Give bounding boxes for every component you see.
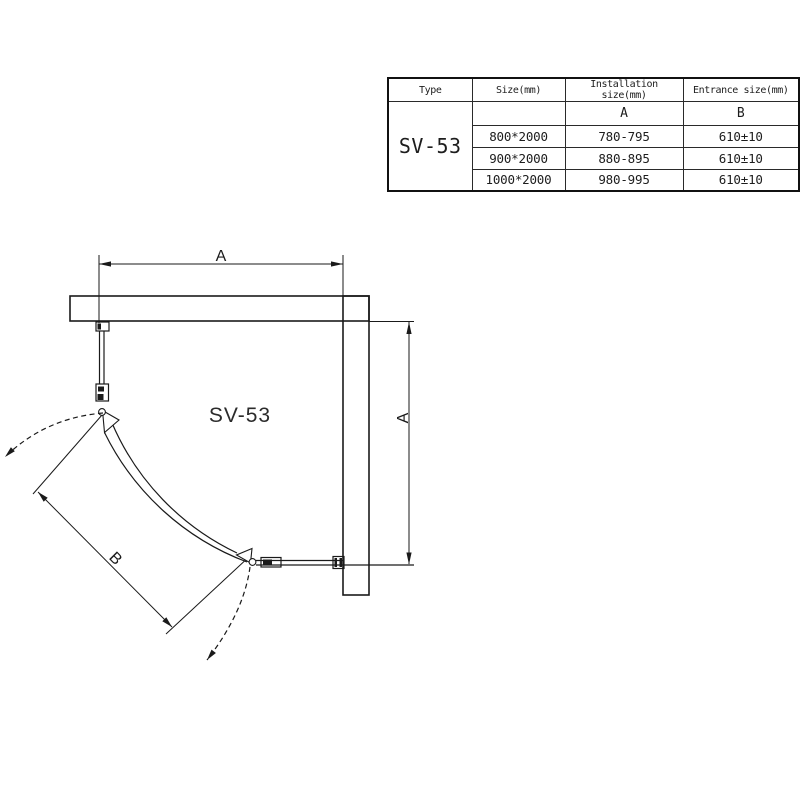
extension-line (33, 415, 102, 494)
cell-installation-1: 880-895 (565, 148, 683, 170)
dimension-line (38, 492, 172, 627)
dim-label-b: B (105, 549, 125, 569)
door-pivots (99, 409, 256, 566)
top-side-panel (96, 322, 109, 401)
cell-installation-0: 780-795 (565, 126, 683, 148)
model-label: SV-53 (209, 404, 271, 427)
side-wall (343, 296, 369, 595)
dimension-a-right: A (369, 322, 414, 565)
hinge-pin (98, 387, 104, 392)
curved-glass (105, 423, 248, 562)
hinge-pin (98, 394, 104, 400)
swing-arrowhead (207, 650, 216, 660)
cell-entrance-2: 610±10 (683, 170, 799, 191)
cell-type-value: SV-53 (388, 102, 472, 191)
cell-size-subheader (472, 102, 565, 126)
cell-entrance-0: 610±10 (683, 126, 799, 148)
extension-line (166, 555, 251, 634)
pivot-point-bottom (249, 559, 256, 566)
table-header-row: Type Size(mm) Installation size(mm) Entr… (388, 78, 799, 102)
cell-installation-2: 980-995 (565, 170, 683, 191)
arrowhead (406, 553, 411, 565)
dim-label-a-top: A (216, 248, 227, 265)
cell-size-1: 900*2000 (472, 148, 565, 170)
spec-table: Type Size(mm) Installation size(mm) Entr… (387, 77, 800, 192)
hinge-pin (263, 560, 272, 566)
arrowhead (331, 261, 343, 266)
header-type: Type (388, 78, 472, 102)
glass-arc-outer (105, 433, 248, 563)
door-swing-arcs (5, 413, 250, 660)
header-size: Size(mm) (472, 78, 565, 102)
bottom-side-panel (256, 557, 414, 569)
bottom-door-swing-arc (207, 567, 250, 660)
pivot-point-top (99, 409, 106, 416)
table-subheader-row: SV-53 A B (388, 102, 799, 126)
glass-arc-inner (112, 423, 237, 553)
dimension-b-entrance: B (33, 415, 251, 634)
header-entrance-size: Entrance size(mm) (683, 78, 799, 102)
dim-label-a-right: A (395, 412, 412, 423)
cell-entrance-1: 610±10 (683, 148, 799, 170)
top-door-swing-arc (5, 413, 103, 457)
arrowhead (406, 322, 411, 334)
cell-size-0: 800*2000 (472, 126, 565, 148)
dimension-a-top: A (99, 248, 343, 323)
top-wall (70, 296, 369, 321)
bracket-clamp (335, 558, 338, 567)
subheader-a: A (565, 102, 683, 126)
header-installation-size: Installation size(mm) (565, 78, 683, 102)
cell-size-2: 1000*2000 (472, 170, 565, 191)
bracket-clamp (98, 324, 102, 330)
bracket-clamp (340, 558, 343, 567)
arrowhead (99, 261, 111, 266)
subheader-b: B (683, 102, 799, 126)
